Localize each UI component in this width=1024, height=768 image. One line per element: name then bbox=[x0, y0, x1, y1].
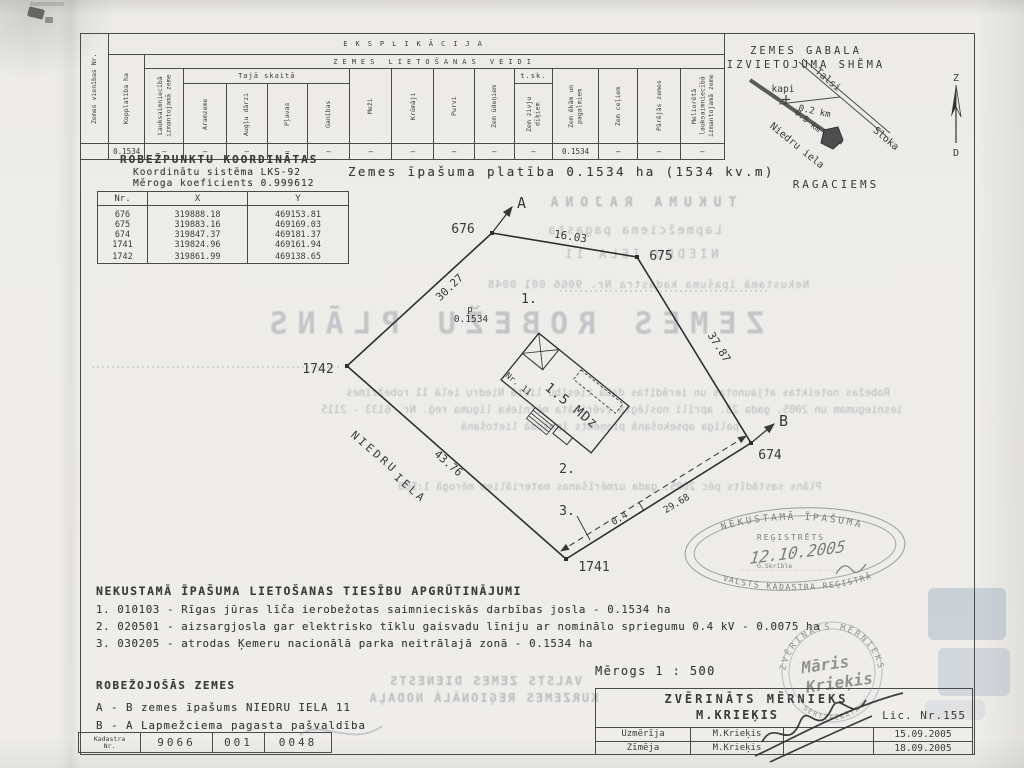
coords-header-y: Y bbox=[248, 192, 349, 206]
surveyor-signature-table: ZVĒRINĀTS MĒRNIEKS M.KRIEĶIS Lic. Nr.155… bbox=[595, 688, 973, 755]
surveyed-row: Uzmērīja M.Krieķis 15.09.2005 bbox=[596, 727, 972, 741]
col-header-shrubs: Krūmāji bbox=[392, 69, 434, 144]
col-header-under-water: Zem ūdeņiem bbox=[474, 69, 514, 144]
coords-title: ROBEŽPUNKTU KOORDINĀTAS bbox=[120, 153, 318, 166]
col-header-meadows: Pļavas bbox=[267, 84, 307, 144]
encumbrance-item: 2. 020501 - aizsargjosla gar elektrisko … bbox=[96, 620, 820, 633]
explication-title: EKSPLIKĀCIJA bbox=[109, 34, 725, 55]
including-header: Tajā skaitā bbox=[184, 69, 350, 84]
drawn-row: Zīmēja M.Krieķis 18.09.2005 bbox=[596, 741, 972, 755]
col-header-fishponds: Zem zivju dīķiem bbox=[514, 84, 552, 144]
document-content: Zemes vienības Nr. EKSPLIKĀCIJA Kopplatī… bbox=[0, 0, 1024, 768]
cadastre-parcel-code: 0048 bbox=[264, 732, 332, 753]
coordinates-table: Nr. X Y 676319888.18469153.81 675319883.… bbox=[97, 191, 349, 264]
surveyor-header: ZVĒRINĀTS MĒRNIEKS M.KRIEĶIS Lic. Nr.155 bbox=[596, 689, 972, 727]
col-header-orchards: Augļu dārzi bbox=[226, 84, 267, 144]
surveyed-date: 15.09.2005 bbox=[874, 728, 972, 741]
col-header-arable: Aramzeme bbox=[184, 84, 226, 144]
cell-water: — bbox=[474, 144, 514, 160]
bordering-lands-title: ROBEŽOJOŠĀS ZEMES bbox=[96, 679, 236, 692]
bordering-item: A - B zemes īpašums NIEDRU IELA 11 bbox=[96, 701, 351, 714]
drawn-by: M.Krieķis bbox=[691, 742, 784, 755]
cadastre-territory-code: 9066 bbox=[140, 732, 212, 753]
coords-row: 675319883.16469169.03 bbox=[98, 220, 349, 230]
property-area-statement: Zemes īpašuma platība 0.1534 ha (1534 kv… bbox=[348, 164, 775, 179]
signature-cell bbox=[784, 728, 874, 741]
cell-fishponds: — bbox=[514, 144, 552, 160]
coords-scale-coefficient: Mēroga koeficients 0.999612 bbox=[133, 178, 314, 189]
col-header-swamps: Purvi bbox=[434, 69, 474, 144]
scanned-land-survey-plan: { "explication": { "title": "EKSPLIKĀCIJ… bbox=[0, 0, 1024, 768]
surveyor-title: ZVĒRINĀTS MĒRNIEKS bbox=[596, 692, 917, 706]
surveyed-by: M.Krieķis bbox=[691, 728, 784, 741]
bordering-item: B - A Lapmežciema pagasta pašvaldība bbox=[96, 719, 366, 732]
cell-unit bbox=[81, 144, 109, 160]
cell-ameliorated: — bbox=[680, 144, 724, 160]
cell-other: — bbox=[638, 144, 680, 160]
cadastre-number-strip: KadastraNr. 9066 001 0048 bbox=[78, 732, 332, 753]
surveyed-label: Uzmērīja bbox=[596, 728, 691, 741]
cell-forests: — bbox=[350, 144, 392, 160]
col-header-forests: Meži bbox=[350, 69, 392, 144]
encumbrance-item: 3. 030205 - atrodas Ķemeru nacionālā par… bbox=[96, 637, 593, 650]
cell-roads: — bbox=[599, 144, 638, 160]
col-header-other-lands: Pārējās zemes bbox=[638, 69, 680, 144]
col-header-roads: Zem ceļiem bbox=[599, 69, 638, 144]
cell-buildings: 0.1534 bbox=[552, 144, 598, 160]
col-header-unit-nr: Zemes vienības Nr. bbox=[81, 34, 109, 144]
cadastre-label: KadastraNr. bbox=[78, 732, 140, 753]
cell-swamps: — bbox=[434, 144, 474, 160]
coords-header-x: X bbox=[148, 192, 248, 206]
col-header-agricultural: Lauksaimniecībā izmantojamā zeme bbox=[145, 69, 184, 144]
land-use-title: ZEMES LIETOŠANAS VEIDI bbox=[145, 55, 725, 69]
coords-system: Koordinātu sistēma LKS-92 bbox=[133, 167, 301, 178]
coords-header-nr: Nr. bbox=[98, 192, 148, 206]
col-header-ameliorated: Meliorētā lauksaimniecībā izmantojamā ze… bbox=[680, 69, 724, 144]
drawn-date: 18.09.2005 bbox=[874, 742, 972, 755]
coords-header-row: Nr. X Y bbox=[98, 192, 349, 206]
signature-cell bbox=[784, 742, 874, 755]
coords-row: 1742319861.99469138.65 bbox=[98, 250, 349, 264]
drawn-label: Zīmēja bbox=[596, 742, 691, 755]
coords-row: 676319888.18469153.81 bbox=[98, 210, 349, 220]
tsk-header: t.sk. bbox=[514, 69, 552, 84]
surveyor-licence: Lic. Nr.155 bbox=[882, 709, 966, 722]
coords-row: 674319847.37469181.37 bbox=[98, 230, 349, 240]
cadastre-group-code: 001 bbox=[212, 732, 264, 753]
scale-label: Mērogs 1 : 500 bbox=[595, 664, 716, 678]
col-header-pastures: Ganības bbox=[307, 84, 349, 144]
col-header-buildings-yards: Zem ēkām un pagalmiem bbox=[552, 69, 598, 144]
cell-shrubs: — bbox=[392, 144, 434, 160]
col-header-total-area: Kopplatība ha bbox=[109, 55, 145, 144]
explication-table: Zemes vienības Nr. EKSPLIKĀCIJA Kopplatī… bbox=[80, 33, 725, 160]
surveyor-name: M.KRIEĶIS bbox=[696, 708, 779, 722]
coords-row: 1741319824.96469161.94 bbox=[98, 240, 349, 250]
encumbrance-item: 1. 010103 - Rīgas jūras līča ierobežotas… bbox=[96, 603, 671, 616]
encumbrances-title: NEKUSTAMĀ ĪPAŠUMA LIETOŠANAS TIESĪBU APG… bbox=[96, 584, 522, 598]
